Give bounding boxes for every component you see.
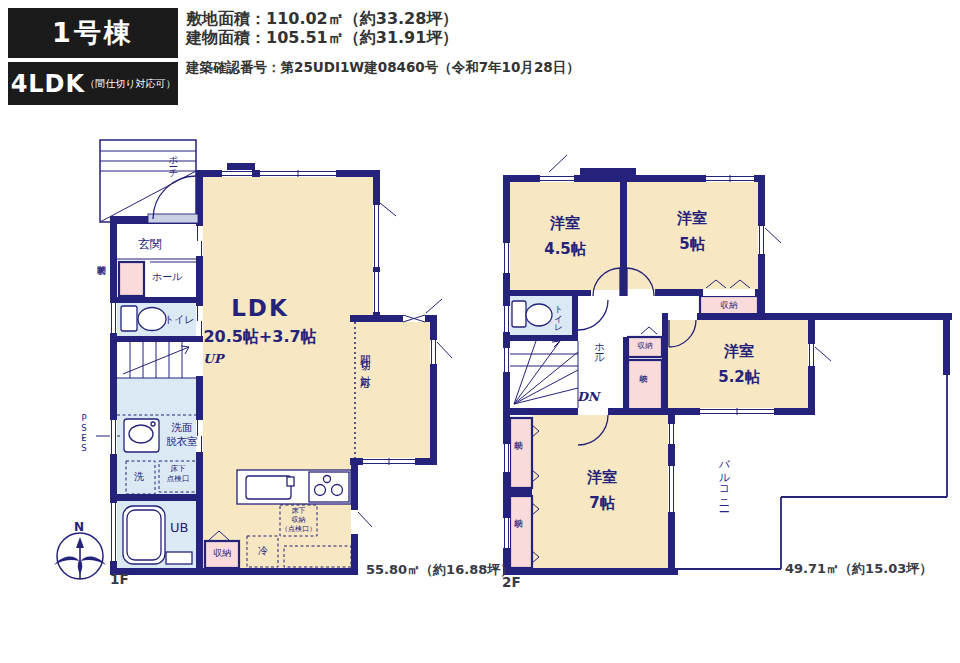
- sink-icon: [124, 419, 159, 452]
- storage-hall-small-label: 収納: [628, 341, 662, 351]
- storage-7-top-box: [510, 418, 532, 488]
- washroom-label: 洗面 脱衣室: [160, 421, 204, 448]
- storage-7-bottom-box: [510, 496, 532, 568]
- room-52-label: 洋室 5.2帖: [685, 338, 793, 391]
- kitchen-icons: [237, 470, 351, 504]
- floorplan-page: 1号棟 4LDK（間仕切り対応可） 敷地面積：110.02㎡（約33.28坪） …: [0, 0, 960, 663]
- compass: [54, 533, 106, 579]
- floor2-name-label: 2F: [502, 574, 521, 592]
- storage-1f-label: 収納: [205, 548, 239, 560]
- fridge-label: 冷: [252, 544, 274, 557]
- up-label: UP: [203, 351, 223, 367]
- porch-label: ポーチ: [167, 149, 179, 174]
- room-7-label: 洋室 7帖: [546, 464, 658, 517]
- north-arrow-icon: [54, 537, 106, 579]
- storage-hall-tall-box: [628, 360, 662, 412]
- porch: [100, 140, 196, 222]
- balcony-label: バルコニー: [716, 452, 730, 507]
- bath-label: UB: [170, 520, 188, 537]
- washer-label: 洗: [134, 470, 144, 483]
- ps-es-label: PS・ES: [78, 413, 89, 453]
- storage-5-label: 収納: [702, 300, 756, 311]
- hall-1f-label: ホール: [152, 270, 182, 283]
- floor1-name-label: 1F: [110, 571, 129, 589]
- underfloor-hatch-label: 床下 点検口: [158, 464, 198, 484]
- compass-north-label: N: [74, 520, 84, 536]
- floor-1f-drawing: [96, 140, 452, 575]
- partition-note-label: 間仕切り対応可: [358, 347, 372, 373]
- ldk-size-label: 20.5帖+3.7帖: [185, 327, 335, 348]
- entrance-label: 玄関: [138, 237, 162, 253]
- room-5-label: 洋室 5帖: [637, 205, 747, 258]
- room-45-label: 洋室 4.5帖: [512, 210, 618, 263]
- hall-2f-label: ホール: [593, 336, 606, 359]
- dn-label: DN: [577, 389, 599, 405]
- toilet-1f-label: トイレ: [164, 313, 195, 326]
- stairs-2f: [510, 341, 578, 408]
- toilet-2f-label: トイレ: [553, 299, 564, 328]
- floor1-area-label: 55.80㎡（約16.88坪）: [366, 562, 513, 579]
- floor2-area-label: 49.71㎡（約15.03坪）: [785, 561, 932, 578]
- floor-storage-label: 床下 収納 （点検口）: [278, 507, 319, 533]
- entrance-storage-box: [119, 262, 144, 296]
- toilet-icon-1f: [121, 306, 166, 331]
- ldk-label: LDK: [200, 294, 320, 324]
